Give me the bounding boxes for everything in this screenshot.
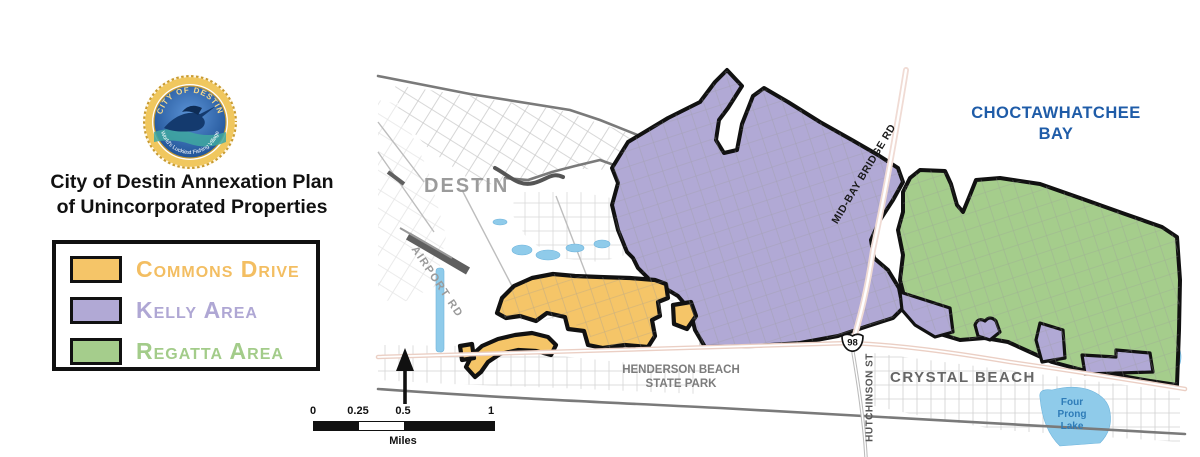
lake-label-line-3: Lake: [1046, 421, 1098, 433]
annexation-map-page: 98 CITY OF DESTIN World's Luckiest F: [0, 0, 1200, 457]
lake-label-line-2: Prong: [1046, 409, 1098, 421]
scale-tick-025: 0.25: [347, 405, 368, 417]
bay-label-line-2: BAY: [958, 124, 1154, 145]
scale-bar-graphic: [313, 421, 495, 431]
regatta-area-swatch: [70, 338, 122, 365]
title-line-1: City of Destin Annexation Plan: [18, 170, 366, 195]
scale-tick-1: 1: [488, 405, 494, 417]
kelly-area-swatch: [70, 297, 122, 324]
scale-tick-05: 0.5: [395, 405, 410, 417]
legend: Commons Drive Kelly Area Regatta Area: [52, 240, 320, 371]
park-label-line-2: STATE PARK: [612, 377, 750, 391]
four-prong-lake-label: Four Prong Lake: [1046, 397, 1098, 433]
henderson-beach-state-park-label: HENDERSON BEACH STATE PARK: [612, 363, 750, 391]
route-98-shield: 98: [842, 334, 863, 351]
lake-label-line-1: Four: [1046, 397, 1098, 409]
hutchinson-st-label: HUTCHINSON ST: [865, 336, 876, 457]
scale-tick-0: 0: [310, 405, 316, 417]
commons-drive-label: Commons Drive: [136, 258, 300, 281]
destin-city-label: DESTIN: [424, 175, 509, 198]
city-of-destin-seal: CITY OF DESTIN World's Luckiest Fishing …: [144, 76, 236, 168]
map-canvas: 98 CITY OF DESTIN World's Luckiest F: [0, 0, 1200, 457]
legend-item-regatta-area: Regatta Area: [70, 336, 284, 367]
legend-item-commons-drive: Commons Drive: [70, 254, 300, 285]
commons-drive-swatch: [70, 256, 122, 283]
kelly-area-label: Kelly Area: [136, 299, 258, 322]
bay-label-line-1: CHOCTAWHATCHEE: [958, 103, 1154, 124]
scale-bar: 0 0.25 0.5 1 Miles: [307, 405, 507, 450]
crystal-beach-label: CRYSTAL BEACH: [890, 369, 1036, 386]
title-line-2: of Unincorporated Properties: [18, 195, 366, 220]
legend-item-kelly-area: Kelly Area: [70, 295, 258, 326]
choctawhatchee-bay-label: CHOCTAWHATCHEE BAY: [958, 103, 1154, 145]
regatta-area-label: Regatta Area: [136, 340, 284, 363]
page-title: City of Destin Annexation Plan of Uninco…: [18, 170, 366, 220]
svg-text:98: 98: [847, 338, 858, 349]
scale-bar-unit: Miles: [313, 435, 493, 447]
park-label-line-1: HENDERSON BEACH: [612, 363, 750, 377]
